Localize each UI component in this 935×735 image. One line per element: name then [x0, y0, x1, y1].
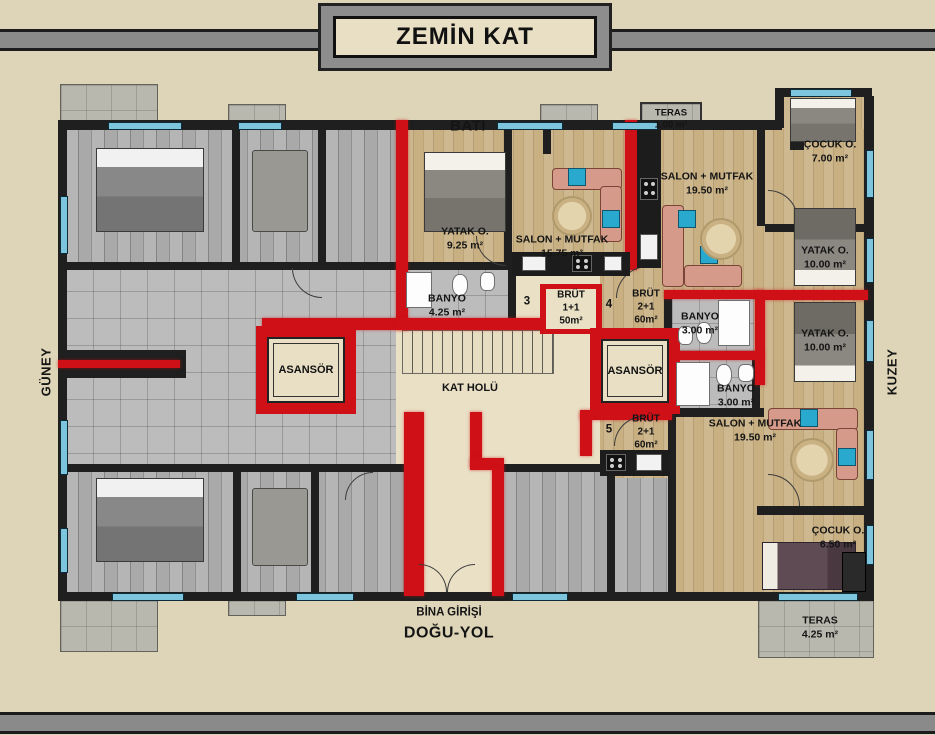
wall	[607, 474, 615, 596]
window	[112, 593, 184, 601]
footer-bar	[0, 712, 935, 734]
room-label-banyo-3b: BANYO3.00 m²	[717, 382, 755, 409]
room-label-banyo-3a: BANYO3.00 m²	[681, 310, 719, 337]
red-wall	[396, 318, 546, 330]
header-bar-left	[0, 29, 320, 51]
window	[512, 593, 568, 601]
red-wall	[580, 412, 592, 456]
elevator-right: ASANSÖR	[590, 328, 680, 414]
wall	[543, 128, 551, 154]
wall	[775, 88, 784, 128]
unit-3-number: 3	[524, 295, 530, 310]
window	[790, 89, 852, 97]
floor-plan: ZEMİN KAT	[0, 0, 935, 735]
closet	[842, 552, 866, 592]
unit5-room2-floor	[615, 478, 668, 594]
terrace-1-label: TERAS1.00 m²	[655, 108, 688, 133]
sink	[738, 364, 754, 382]
red-wall	[755, 300, 765, 385]
window	[60, 196, 68, 254]
window	[60, 420, 68, 475]
room-label-yatak-925: YATAK O.9.25 m²	[441, 225, 489, 252]
road-label: DOĞU-YOL	[404, 624, 494, 645]
wall	[757, 506, 868, 515]
unit5-room1-floor	[504, 472, 607, 594]
terrace-pad	[228, 600, 286, 616]
sink	[636, 454, 662, 471]
wall	[504, 464, 608, 472]
room-label-cocuk-650: ÇOCUK O.6.50 m²	[812, 524, 865, 551]
sofa	[252, 150, 308, 232]
south-wall-red-core	[58, 360, 180, 368]
sink	[480, 272, 495, 291]
shower	[676, 362, 710, 406]
wall	[233, 470, 241, 592]
header-bar-right	[610, 29, 935, 51]
red-wall	[755, 290, 868, 300]
sofa	[252, 488, 308, 566]
wall	[318, 128, 326, 268]
unit-4-brut-label: BRÜT2+160m²	[632, 288, 660, 327]
sofa-pillow	[838, 448, 856, 466]
wall	[311, 470, 319, 592]
room-label-banyo-425: BANYO4.25 m²	[428, 292, 466, 319]
red-wall	[664, 290, 764, 299]
wall	[668, 412, 676, 596]
window	[238, 122, 282, 130]
page-title: ZEMİN KAT	[333, 16, 597, 58]
wall	[757, 126, 765, 226]
window	[497, 122, 563, 130]
wall	[232, 128, 240, 268]
room-label-salon-1575: SALON + MUTFAK15.75 m²	[516, 233, 608, 260]
window	[866, 238, 874, 283]
stove	[640, 178, 658, 200]
sofa-pillow	[602, 210, 620, 228]
sofa-pillow	[678, 210, 696, 228]
elevator-left: ASANSÖR	[256, 326, 356, 414]
hall-label: KAT HOLÜ	[442, 381, 498, 395]
bed	[96, 478, 204, 562]
window	[60, 528, 68, 573]
window	[866, 320, 874, 362]
unit-4-number: 4	[606, 298, 612, 313]
window	[108, 122, 182, 130]
terrace-pad	[60, 84, 158, 122]
terrace-2-label: TERAS4.25 m²	[802, 614, 838, 641]
sofa-pillow	[800, 409, 818, 427]
fridge	[640, 234, 658, 260]
window	[612, 122, 658, 130]
compass-kuzey: KUZEY	[885, 349, 902, 396]
shower	[718, 300, 750, 346]
window	[866, 430, 874, 480]
stove	[606, 454, 626, 471]
window	[866, 525, 874, 565]
bed	[96, 148, 204, 232]
unit-5-brut-label: BRÜT2+160m²	[632, 413, 660, 452]
sofa	[684, 265, 742, 287]
room-label-cocuk-7: ÇOCUK O.7.00 m²	[804, 138, 857, 165]
room-label-salon-1950b: SALON + MUTFAK19.50 m²	[709, 417, 801, 444]
staircase	[402, 330, 554, 374]
compass-bati: BATI	[450, 116, 486, 136]
sofa-pillow	[568, 168, 586, 186]
bed	[790, 98, 856, 142]
bed	[424, 152, 506, 232]
rug	[552, 196, 592, 236]
entrance-label: BİNA GİRİŞİ	[416, 606, 481, 621]
elevator-right-label: ASANSÖR	[601, 339, 669, 403]
red-wall	[625, 120, 637, 270]
rug	[700, 218, 742, 260]
red-wall	[492, 468, 504, 596]
elevator-left-label: ASANSÖR	[267, 337, 345, 403]
room-label-yatak-10a: YATAK O.10.00 m²	[801, 244, 849, 271]
unit-5-number: 5	[606, 423, 612, 438]
room-label-salon-1950a: SALON + MUTFAK19.50 m²	[661, 170, 753, 197]
room-label-yatak-10b: YATAK O.10.00 m²	[801, 327, 849, 354]
unit-3-brut-label: BRÜT1+150m²	[557, 289, 585, 328]
title-box: ZEMİN KAT	[318, 3, 612, 71]
window	[296, 593, 354, 601]
window	[778, 593, 858, 601]
terrace-pad	[60, 600, 158, 652]
compass-guney: GÜNEY	[39, 348, 56, 397]
window	[866, 150, 874, 198]
